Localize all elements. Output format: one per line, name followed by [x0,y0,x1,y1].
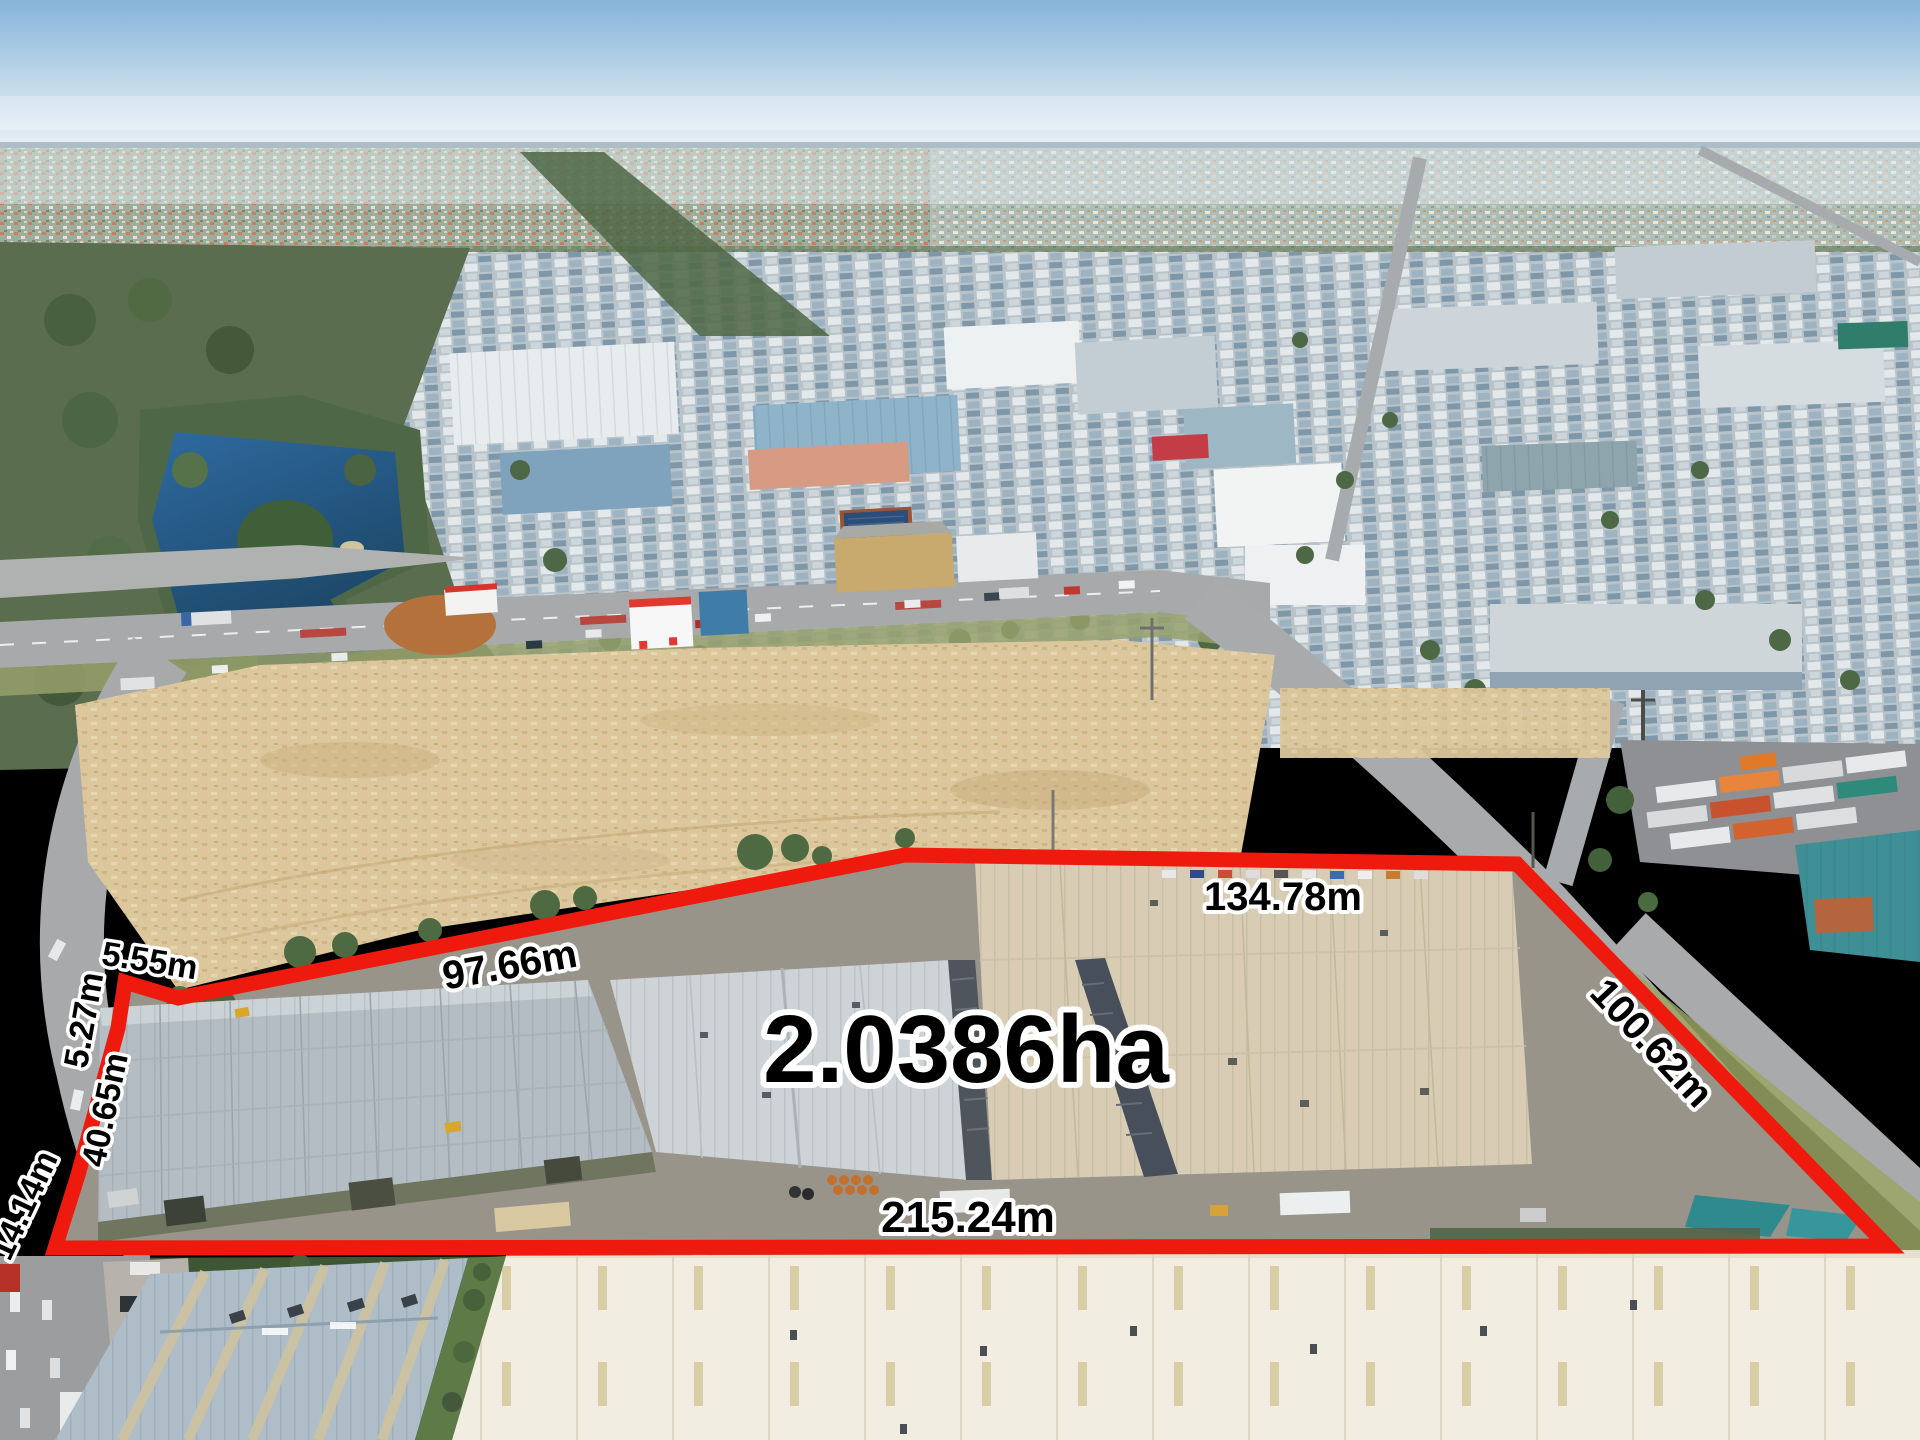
foreground [0,1246,1920,1440]
label-area: 2.0386ha [763,996,1169,1103]
sky [0,0,1920,152]
foreground-roof-right [452,1250,1920,1440]
label-134-78m: 134.78m [1204,875,1362,919]
aerial-property-photo: 2.0386ha 5.55m 5.27m 40.65m 14.14m 97.66… [0,0,1920,1440]
label-215-24m: 215.24m [881,1193,1055,1242]
